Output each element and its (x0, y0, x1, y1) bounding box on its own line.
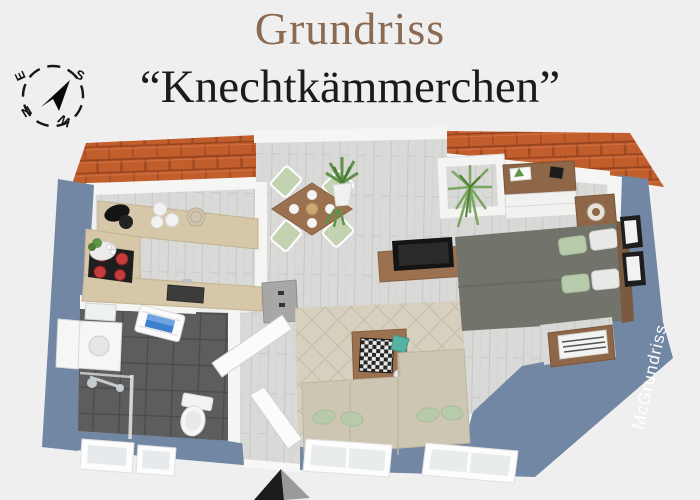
cup (107, 245, 112, 250)
black-box (549, 166, 563, 179)
bathroom-mirror (85, 303, 116, 321)
rotate-arrow-icon (254, 469, 310, 500)
kitchen-plant (88, 243, 96, 251)
plate (154, 203, 167, 216)
bed-pillow-white (591, 269, 620, 291)
chessboard (359, 338, 394, 373)
bathroom-window-sill (56, 319, 80, 369)
plate (151, 216, 163, 228)
wall-picture-mat (624, 220, 638, 244)
shower-glass (130, 375, 132, 439)
cabinet-handle (279, 303, 285, 307)
faucet (182, 279, 192, 283)
arrow-light-face (281, 469, 310, 500)
plant-pot (333, 183, 352, 206)
page-subtitle: “Knechtkämmerchen” (0, 60, 700, 114)
bed-pillow-white (589, 228, 618, 251)
window-glass (142, 450, 170, 470)
plate (307, 190, 317, 200)
bed-pillow-green (561, 274, 590, 294)
wall-picture-mat (626, 256, 641, 281)
plate (289, 204, 299, 214)
burner (94, 266, 106, 278)
cup (111, 250, 116, 255)
burner (116, 253, 128, 265)
table-lamp-center (592, 208, 600, 216)
basket (187, 208, 205, 226)
centerpiece-bowl (306, 203, 318, 215)
window-glass (87, 445, 127, 466)
page-title: Grundriss (0, 2, 700, 55)
bed-pillow-green (558, 235, 587, 256)
burner (115, 270, 126, 281)
floorplan-page: Grundriss E S N W “Knechtkämmerchen” (0, 0, 700, 500)
arrow-dark-face (254, 469, 284, 500)
window-mullion (468, 452, 470, 473)
plate (166, 214, 179, 227)
tv-screen (398, 242, 449, 266)
bathroom-sink (89, 336, 109, 356)
floorplan-rendering: McGrundriss (0, 125, 700, 500)
living-area (295, 301, 470, 455)
kitchen-sink (167, 285, 204, 303)
coffee-machine-cup (119, 215, 133, 229)
cabinet-handle (278, 291, 284, 295)
plate (307, 218, 317, 228)
window-mullion (347, 447, 348, 469)
shower-head (116, 384, 124, 392)
